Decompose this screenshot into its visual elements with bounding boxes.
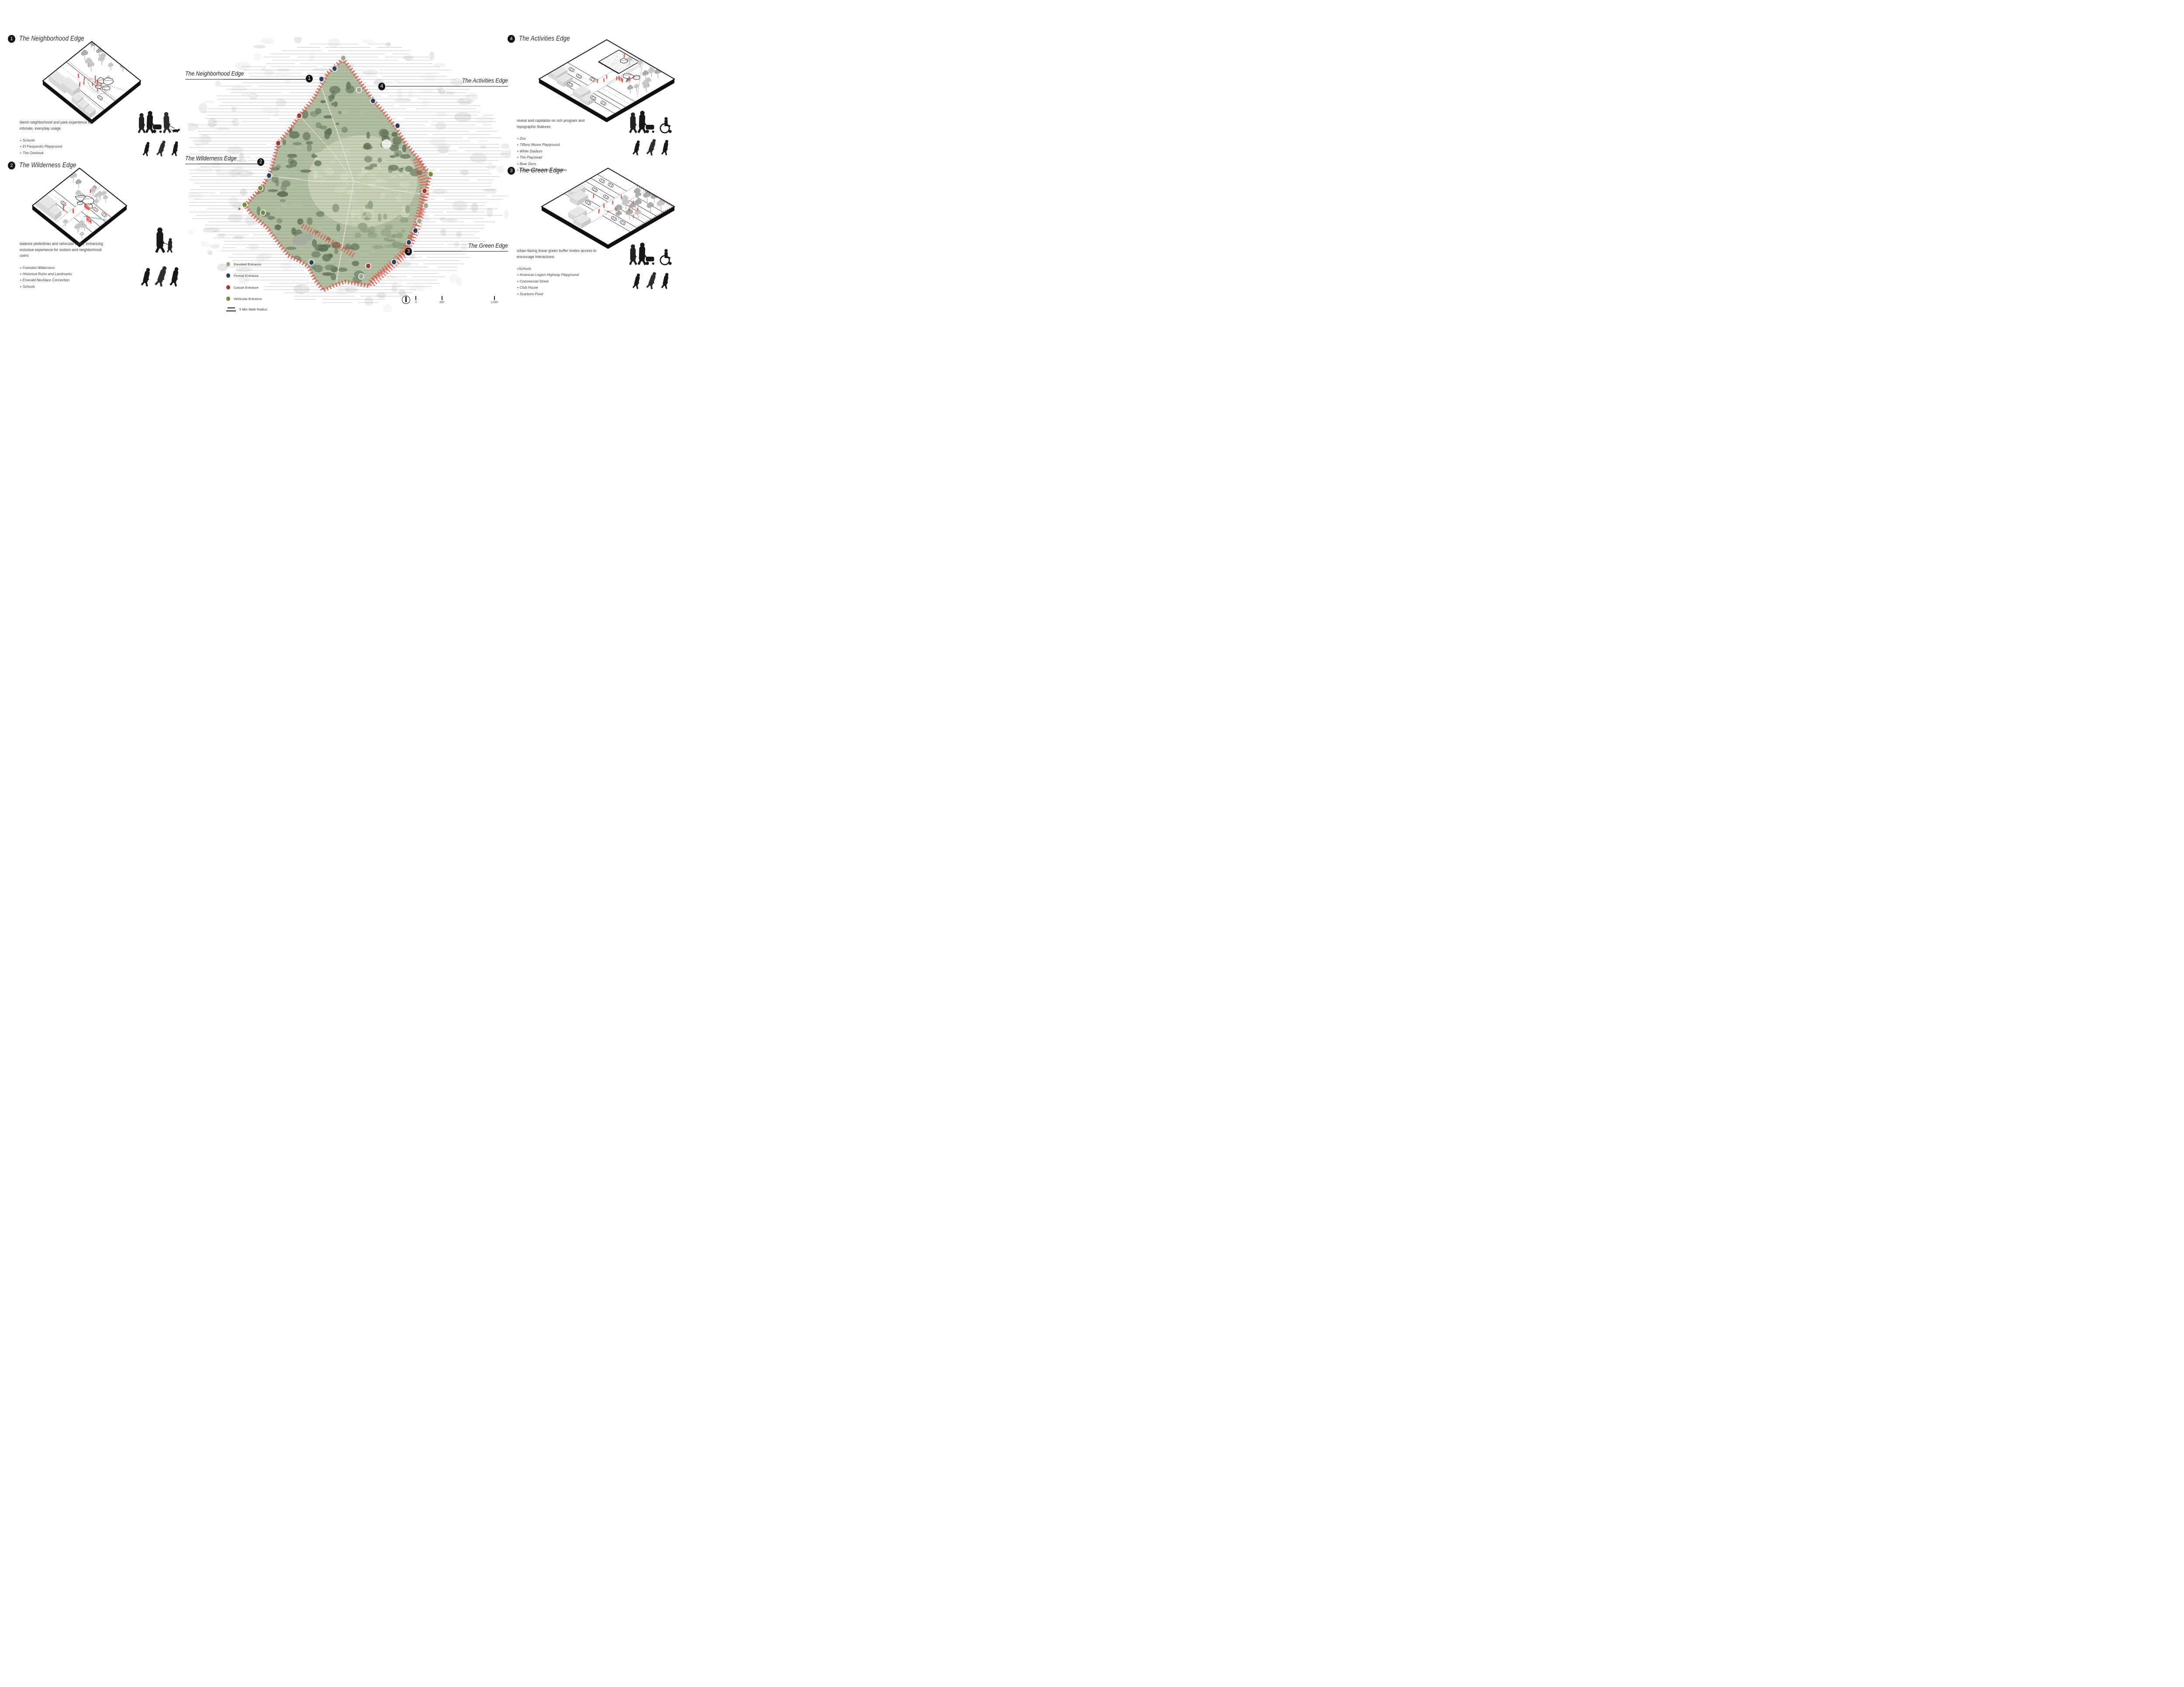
leader-line bbox=[414, 251, 508, 252]
entrance-dot bbox=[416, 218, 422, 224]
people-group bbox=[633, 138, 669, 155]
legend-label: Elevated Entrance bbox=[234, 262, 261, 266]
figure bbox=[63, 204, 64, 208]
legend-item-elevated: Elevated Entrance bbox=[226, 262, 261, 266]
person-silhouette bbox=[662, 273, 670, 289]
legend-item-casual: Casual Entrance bbox=[226, 285, 259, 290]
feature-item: + White Stadium bbox=[517, 148, 601, 154]
entrance-dot bbox=[412, 228, 418, 234]
feature-list: + Schools+ El Parquesito Playground+ The… bbox=[20, 137, 98, 156]
leader-line bbox=[185, 164, 258, 164]
scale-tick-label: 0 bbox=[415, 301, 417, 304]
scale-bar: 0 350' 1,050' bbox=[402, 293, 507, 307]
entrance-dot bbox=[356, 87, 362, 93]
entrance-dot bbox=[332, 66, 338, 72]
people-photo-kids bbox=[137, 260, 181, 286]
feature-item: + The Playstead bbox=[517, 154, 601, 160]
figure bbox=[629, 77, 630, 81]
figure bbox=[633, 201, 634, 204]
feature-item: + American Legion Highway Playground bbox=[517, 272, 607, 278]
person-silhouette bbox=[639, 110, 646, 133]
figure bbox=[97, 88, 98, 92]
map-legend: Elevated Entrance Formal Entrance Casual… bbox=[226, 262, 283, 314]
section-description: urban-facing linear green buffer invites… bbox=[517, 248, 607, 260]
north-arrow-icon bbox=[402, 296, 410, 304]
people-photo-family-wheelchair bbox=[627, 240, 676, 266]
feature-item: +Schools bbox=[517, 266, 607, 272]
people-photo-family bbox=[135, 109, 181, 134]
people-group bbox=[156, 228, 173, 252]
walk-radius-lines-icon bbox=[226, 307, 236, 312]
map-badge: 3 bbox=[405, 248, 412, 255]
entrance-dot bbox=[406, 239, 412, 245]
map-label-activities-edge: The Activities Edge bbox=[401, 77, 508, 84]
person-silhouette bbox=[157, 140, 167, 156]
scale-tick bbox=[415, 296, 416, 300]
person-silhouette bbox=[170, 267, 180, 286]
feature-item: + Historical Ruins and Landmarks bbox=[20, 271, 108, 277]
section-text-green: urban-facing linear green buffer invites… bbox=[517, 248, 613, 297]
casual-entrance-dot-icon bbox=[226, 285, 230, 290]
feature-item: + Schools bbox=[20, 283, 108, 290]
scale-tick-label: 1,050' bbox=[491, 301, 498, 304]
figure bbox=[83, 81, 85, 85]
map-label-green-edge: The Green Edge bbox=[425, 242, 508, 249]
legend-item-walk-radius: 5 Min Walk Radius bbox=[226, 307, 267, 312]
figure bbox=[90, 220, 92, 224]
legend-label: 5 Min Walk Radius bbox=[239, 307, 267, 311]
svg-text:1: 1 bbox=[308, 76, 311, 81]
entrance-dot bbox=[275, 140, 281, 146]
people-group bbox=[633, 271, 670, 289]
formal-entrance-dot-icon bbox=[226, 273, 230, 278]
elevated-entrance-dot-icon bbox=[226, 262, 230, 266]
map-label-neighborhood-edge: The Neighborhood Edge bbox=[185, 70, 244, 77]
svg-text:4: 4 bbox=[380, 84, 384, 89]
people-photo-parent-child bbox=[149, 225, 182, 253]
vehicular-entrance-dot-icon bbox=[226, 297, 230, 301]
feature-item: + Club House bbox=[517, 284, 607, 290]
figure bbox=[621, 195, 622, 199]
entrance-dot bbox=[266, 172, 272, 179]
section-description: reveal and capitalize on rich program an… bbox=[517, 118, 601, 130]
legend-label: Vehicular Entrance bbox=[234, 297, 262, 301]
person-silhouette bbox=[156, 228, 164, 252]
people-photo-family-wheelchair bbox=[627, 108, 676, 134]
people-group bbox=[630, 242, 671, 265]
people-photo-kids bbox=[628, 267, 676, 289]
people-group bbox=[142, 266, 180, 286]
person-silhouette bbox=[630, 244, 636, 265]
figure bbox=[615, 207, 617, 211]
feature-item: + Forested Wilderness bbox=[20, 265, 108, 271]
feature-item: + The Overlook bbox=[20, 150, 98, 156]
map-badge: 2 bbox=[257, 158, 264, 166]
feature-list: +Schools+ American Legion Highway Playgr… bbox=[517, 266, 607, 297]
person-silhouette bbox=[146, 111, 154, 133]
entrance-dot bbox=[340, 55, 346, 61]
entrance-dot bbox=[365, 263, 371, 269]
person-silhouette bbox=[139, 113, 145, 133]
entrance-dot bbox=[428, 171, 434, 177]
people-photo-kids bbox=[138, 136, 181, 156]
entrance-dot bbox=[391, 259, 397, 265]
entrance-dot bbox=[308, 259, 314, 266]
figure bbox=[606, 75, 607, 79]
entrance-dot bbox=[394, 123, 401, 129]
person-silhouette bbox=[633, 273, 641, 289]
axon-diagram-neighborhood bbox=[40, 38, 142, 129]
entrance-dot bbox=[260, 210, 266, 216]
legend-label: Formal Entrance bbox=[234, 274, 259, 278]
legend-label: Casual Entrance bbox=[234, 286, 259, 290]
person-silhouette bbox=[156, 266, 169, 286]
legend-item-vehicular: Vehicular Entrance bbox=[226, 297, 262, 301]
figure bbox=[629, 207, 630, 211]
feature-item: + Scarboro Pond bbox=[517, 291, 607, 297]
person-silhouette bbox=[647, 138, 657, 155]
feature-item: + Zoo bbox=[517, 135, 601, 141]
person-silhouette bbox=[143, 141, 151, 156]
person-silhouette bbox=[633, 140, 641, 155]
entrance-dot bbox=[242, 202, 248, 208]
leader-line bbox=[386, 86, 508, 86]
legend-item-formal: Formal Entrance bbox=[226, 273, 259, 278]
section-description: blend neighborhood and park experience f… bbox=[20, 120, 98, 131]
entrance-dot bbox=[358, 273, 364, 279]
figure bbox=[612, 200, 613, 204]
entrance-dot bbox=[423, 203, 429, 209]
map-badge: 1 bbox=[306, 75, 313, 83]
feature-list: + Forested Wilderness+ Historical Ruins … bbox=[20, 265, 108, 290]
entrance-dot bbox=[318, 76, 325, 82]
people-group bbox=[139, 111, 180, 133]
section-text-neighborhood: blend neighborhood and park experience f… bbox=[20, 120, 103, 156]
person-silhouette bbox=[639, 242, 646, 265]
person-silhouette bbox=[167, 238, 173, 252]
people-photo-kids bbox=[628, 135, 676, 155]
feature-item: + Schools bbox=[20, 137, 98, 143]
people-group bbox=[143, 140, 180, 156]
section-number-badge: 2 bbox=[8, 162, 15, 169]
section-description: balance pedestrian and vehicular traffic… bbox=[20, 241, 108, 259]
entrance-dot bbox=[257, 185, 263, 191]
feature-item: + Commercial Street bbox=[517, 278, 607, 284]
feature-item: + El Parquesito Playground bbox=[20, 143, 98, 149]
presentation-board: 1 The Neighborhood Edge blend neighborho… bbox=[0, 0, 681, 332]
axon-content bbox=[547, 50, 661, 114]
map-badge: 4 bbox=[378, 83, 385, 90]
scale-tick bbox=[494, 296, 495, 300]
section-number-badge: 1 bbox=[8, 35, 15, 43]
person-silhouette bbox=[647, 271, 658, 289]
people-group bbox=[630, 110, 671, 133]
svg-text:3: 3 bbox=[407, 249, 410, 254]
person-silhouette bbox=[163, 112, 171, 133]
person-silhouette bbox=[630, 112, 636, 133]
feature-item: + Emerald Necklace Connection bbox=[20, 277, 108, 283]
scale-tick-label: 350' bbox=[439, 301, 445, 304]
entrance-dot bbox=[370, 98, 376, 104]
axon-diagram-wilderness bbox=[30, 165, 129, 252]
person-silhouette bbox=[142, 267, 152, 286]
map-label-wilderness-edge: The Wilderness Edge bbox=[185, 155, 237, 162]
person-silhouette bbox=[172, 141, 179, 156]
person-silhouette bbox=[662, 139, 670, 155]
section-text-wilderness: balance pedestrian and vehicular traffic… bbox=[20, 241, 114, 290]
entrance-dot bbox=[296, 113, 302, 119]
figure bbox=[88, 206, 90, 210]
entrance-dot bbox=[422, 188, 428, 194]
scale-tick bbox=[442, 296, 442, 300]
feature-item: + Tiffany Moore Playground bbox=[517, 141, 601, 148]
leader-line bbox=[185, 79, 306, 79]
svg-text:2: 2 bbox=[259, 159, 262, 165]
